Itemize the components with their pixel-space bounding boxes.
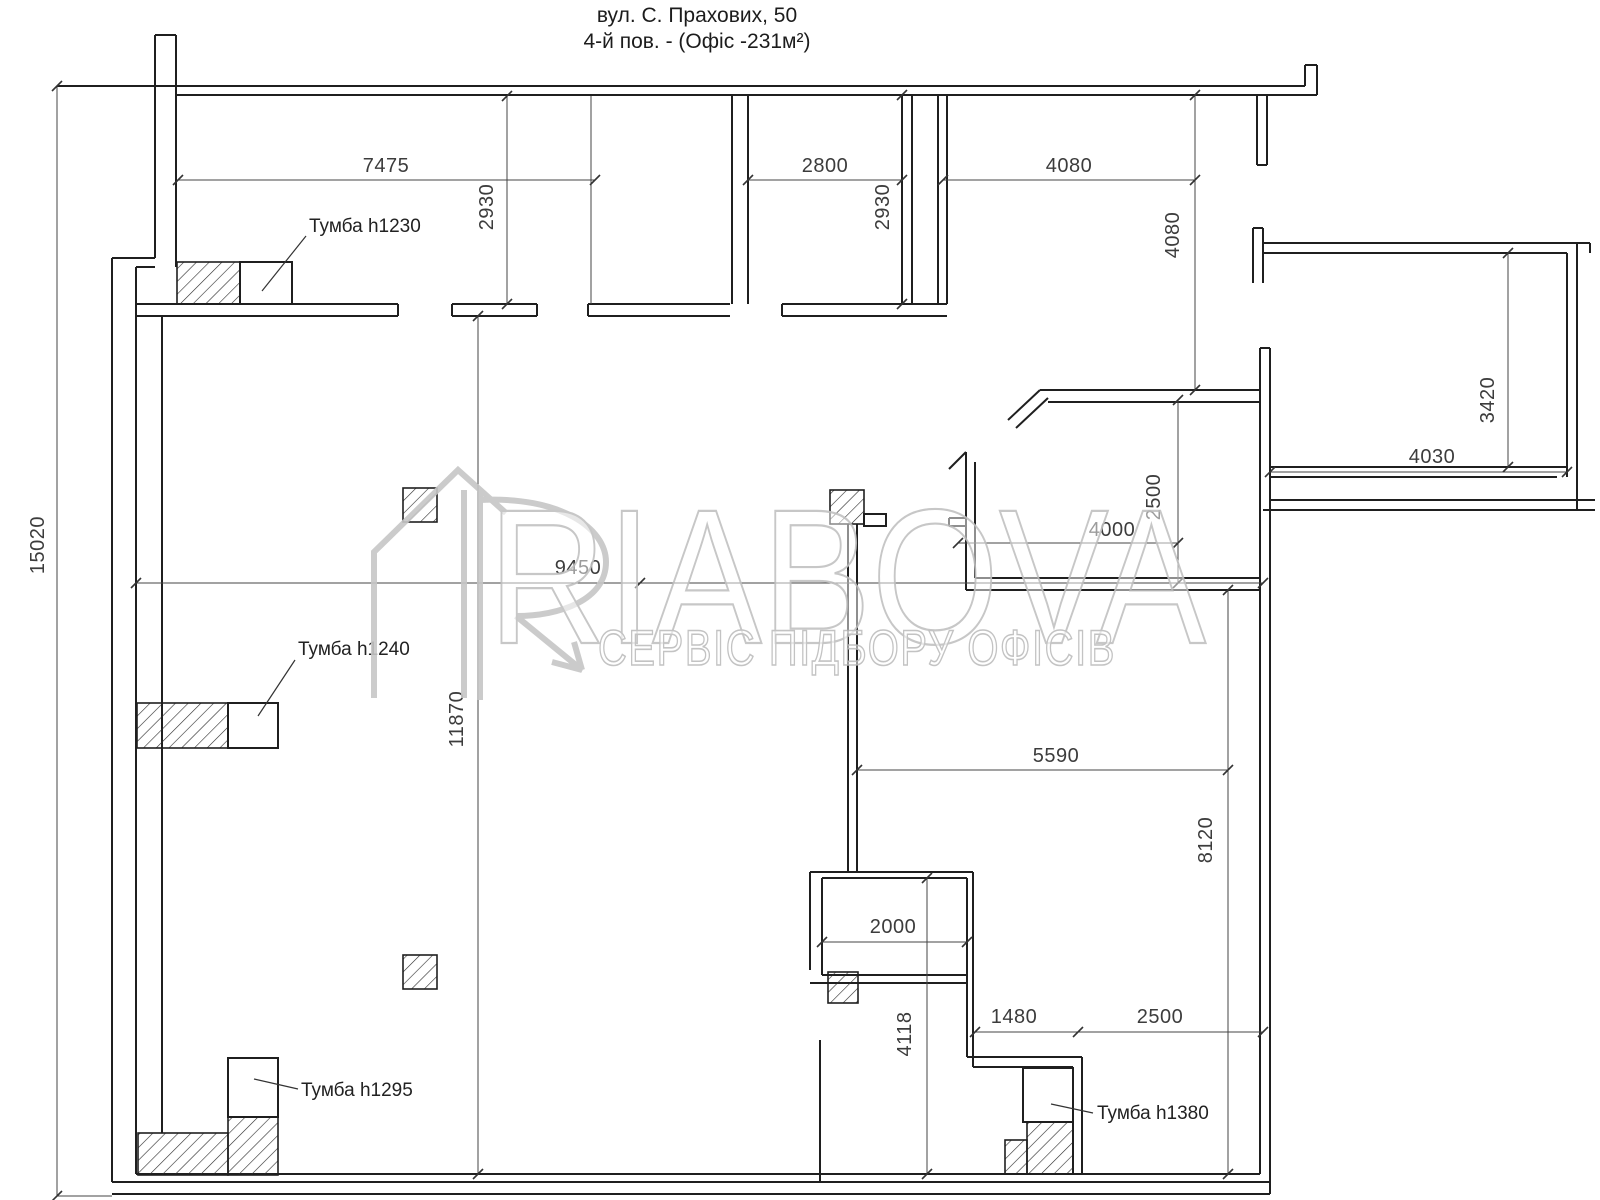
cabinet-1230-hatch — [177, 262, 240, 304]
cabinet-1380-hatch-step — [1005, 1140, 1027, 1174]
dim-2000: 2000 — [870, 916, 917, 938]
dim-2930-a: 2930 — [476, 184, 498, 231]
dim-4118: 4118 — [894, 1011, 916, 1056]
dim-8120: 8120 — [1195, 817, 1217, 864]
dim-7475: 7475 — [363, 155, 410, 177]
dim-1480: 1480 — [991, 1006, 1038, 1028]
watermark-tagline: СЕРВІС ПІДБОРУ ОФІСІВ — [598, 620, 1116, 676]
cabinet-1240-label: Тумба h1240 — [298, 639, 410, 660]
column-hatch-3 — [403, 955, 437, 989]
cabinet-1295-label: Тумба h1295 — [301, 1080, 413, 1101]
cabinet-boxes — [228, 262, 1073, 1122]
title-floor-office: 4-й пов. - (Офіс -231м²) — [583, 30, 810, 53]
cabinet-1295-hatch-upper — [228, 1117, 278, 1175]
cabinet-1240-box — [228, 703, 278, 748]
watermark: RIABOVA СЕРВІС ПІДБОРУ ОФІСІВ — [374, 469, 1206, 700]
cabinet-1295-box — [228, 1058, 278, 1117]
dim-4080-right: 4080 — [1162, 212, 1184, 259]
floor-plan-canvas: 7475 2800 4080 2930 2930 4080 3420 4030 … — [0, 0, 1600, 1200]
cabinet-1380-label: Тумба h1380 — [1097, 1103, 1209, 1124]
floor-plan-page: 7475 2800 4080 2930 2930 4080 3420 4030 … — [0, 0, 1600, 1200]
cabinet-1380-box — [1023, 1068, 1073, 1122]
dim-4080-top: 4080 — [1046, 155, 1093, 177]
dim-2500-bottom: 2500 — [1137, 1006, 1184, 1028]
drawing-title: вул. С. Прахових, 50 4-й пов. - (Офіс -2… — [583, 4, 810, 53]
title-address: вул. С. Прахових, 50 — [597, 4, 797, 27]
cabinet-1230-box — [240, 262, 292, 304]
dim-3420: 3420 — [1477, 377, 1499, 424]
dim-5590: 5590 — [1033, 745, 1080, 767]
column-hatch-4 — [828, 972, 858, 1003]
dim-11870: 11870 — [446, 691, 468, 748]
cabinet-1240-hatch — [137, 703, 228, 748]
cabinet-1230-label: Тумба h1230 — [309, 216, 421, 237]
dim-15020: 15020 — [27, 516, 49, 574]
dim-2800: 2800 — [802, 155, 849, 177]
dim-2930-b: 2930 — [872, 184, 894, 231]
cabinet-1380-hatch — [1027, 1122, 1073, 1174]
dim-4030: 4030 — [1409, 446, 1456, 468]
cabinet-1295-hatch — [138, 1133, 228, 1175]
